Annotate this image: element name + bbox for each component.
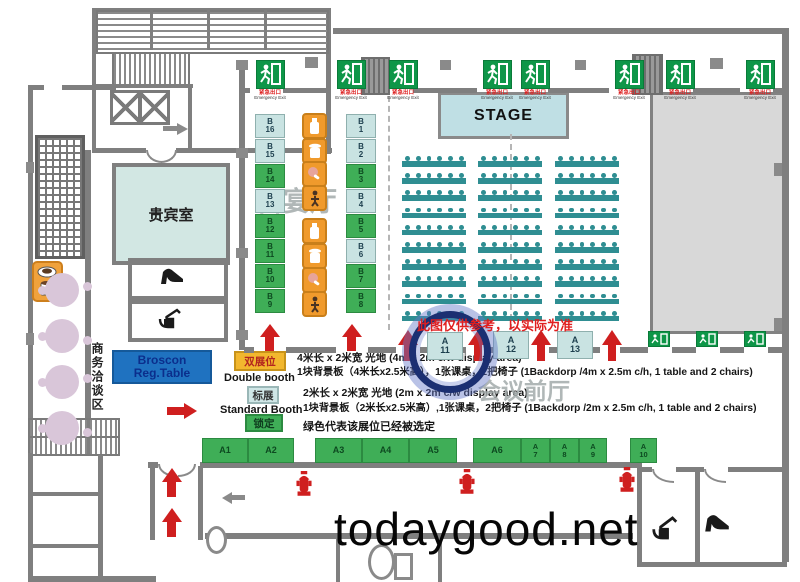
booth-A6[interactable]: A6 [473,438,521,463]
seat-dot [558,208,563,213]
floor-plan: STAGE 贵宾室 Broscon Reg.Table 百宴厅 会议前厅 商务洽… [0,0,800,582]
seat-dot [481,225,486,230]
booth-label-num: 12 [266,226,275,234]
emergency-exit: 紧急出口Emergency Exit [334,60,368,104]
seat-dot [492,259,497,264]
site-watermark: todaygood.net [334,502,639,556]
arrow-head [177,123,188,135]
exit-sign-icon [666,60,695,89]
booth-label: A5 [427,446,439,455]
seat-dot [535,190,540,195]
booth-label-num: 8 [562,451,566,459]
flow-arrow [163,122,189,135]
booth-A9[interactable]: A9 [579,438,607,463]
seat-dot [535,242,540,247]
arrow-head [222,492,232,504]
booth-label-num: 5 [359,226,363,234]
seat-dot [481,208,486,213]
booth-label-num: 15 [266,151,275,159]
emergency-exit: 紧急出口Emergency Exit [518,60,552,104]
exit-sign-icon [746,60,775,89]
seat-dot [580,225,585,230]
seat-dot [416,190,421,195]
exit-caption-en: Emergency Exit [383,95,423,100]
booth-label: A4 [380,446,392,455]
booth-label-num: 8 [359,301,363,309]
exit-sign-icon [648,331,670,347]
booth-B7[interactable]: B7 [346,264,376,288]
seat-dot [612,190,617,195]
seat-dot [459,190,464,195]
emergency-exit: 紧急出口Emergency Exit [386,60,420,104]
seat-dot [503,225,508,230]
seat-dot [535,208,540,213]
chair-dot [38,332,47,341]
seat-dot [524,242,529,247]
booth-label-num: 11 [266,251,274,259]
seat-dot [612,242,617,247]
banquet-table [402,195,466,201]
flow-arrow [222,491,246,504]
seat-dot [590,311,595,316]
banquet-table [555,213,619,219]
booth-A2[interactable]: A2 [248,438,294,463]
seat-dot [492,276,497,281]
seat-dot [612,225,617,230]
entrance-arrow [161,508,182,537]
bottle-icon [302,113,327,139]
seat-dot [524,156,529,161]
seat-dot [612,156,617,161]
booth-B1[interactable]: B1 [346,114,376,138]
arrow-shaft [608,345,617,361]
arrow-head [162,468,182,482]
emergency-exit: 紧急出口Emergency Exit [663,60,697,104]
seat-dot [612,294,617,299]
arrow-shaft [167,407,184,414]
seat-dot [535,156,540,161]
seat-dot [558,173,563,178]
seat-dot [524,173,529,178]
seat-dot [448,259,453,264]
booth-label-num: 9 [268,301,272,309]
seat-dot [580,242,585,247]
seat-dot [492,294,497,299]
exit-sign-icon [483,60,512,89]
seat-dot [492,173,497,178]
banquet-table [555,299,619,305]
seat-dot [558,225,563,230]
booth-label-num: 7 [533,451,537,459]
seat-dot [427,242,432,247]
seat-dot [612,276,617,281]
seat-dot [580,156,585,161]
legend-double-desc2: 1块背景板（4米长x2.5米高），1张课桌，2把椅子 (1Backdorp /4… [297,363,753,378]
seat-dot [416,225,421,230]
chair-dot [83,336,92,345]
person-icon [302,185,327,211]
seat-dot [492,208,497,213]
booth-A4[interactable]: A4 [362,438,409,463]
arrow-shaft [232,495,245,501]
seat-dot [405,190,410,195]
banquet-table [478,178,542,184]
banquet-table [478,281,542,287]
seat-dot [569,208,574,213]
banquet-table [478,161,542,167]
booth-B9[interactable]: B9 [255,289,285,313]
seat-dot [569,156,574,161]
exit-sign-icon [744,331,766,347]
seat-dot [612,259,617,264]
arrow-shaft [167,522,176,537]
booth-A8[interactable]: A8 [550,438,579,463]
seat-dot [590,156,595,161]
arrow-shaft [347,337,356,351]
banquet-table [555,247,619,253]
seat-dot [492,190,497,195]
seat-dot [459,156,464,161]
seat-dot [427,156,432,161]
booth-B4[interactable]: B4 [346,189,376,213]
fire-hydrant-icon [459,469,475,497]
seat-dot [448,156,453,161]
entrance-arrow [602,330,622,361]
exit-caption-en: Emergency Exit [250,95,290,100]
seat-dot [524,225,529,230]
flow-arrow [167,403,197,419]
booth-label-num: 10 [639,451,647,459]
seat-dot [558,276,563,281]
seat-dot [601,242,606,247]
arrow-head [184,403,197,419]
chair-dot [38,286,47,295]
banquet-table [478,299,542,305]
booth-B6[interactable]: B6 [346,239,376,263]
seat-dot [416,276,421,281]
booth-label-num: 14 [266,176,275,184]
booth-B2[interactable]: B2 [346,139,376,163]
booth-label-num: 3 [359,176,363,184]
seat-dot [569,259,574,264]
chair-dot [83,282,92,291]
meat-icon [302,161,327,187]
banquet-table [402,178,466,184]
seat-dot [558,156,563,161]
seat-dot [405,276,410,281]
chair-dot [38,424,47,433]
seat-dot [427,225,432,230]
booth-label: A3 [333,446,345,455]
seat-dot [513,242,518,247]
disclaimer-text: 此图仅供参考，以实际为准 [417,315,573,334]
booth-label-num: 2 [359,151,363,159]
seat-dot [405,208,410,213]
seat-dot [503,156,508,161]
banquet-table [402,264,466,270]
booth-label: A2 [265,446,277,455]
emergency-exit: 紧急出口Emergency Exit [480,60,514,104]
seat-dot [481,173,486,178]
seat-dot [405,311,410,316]
seat-dot [601,225,606,230]
entrance-arrow [161,468,182,497]
seat-dot [405,173,410,178]
seat-dot [535,294,540,299]
seat-dot [481,294,486,299]
booth-B11[interactable]: B11 [255,239,285,263]
banquet-table [555,161,619,167]
booth-label-num: 10 [266,276,275,284]
round-table [45,273,79,307]
booth-label-num: 1 [359,126,363,134]
seat-dot [601,311,606,316]
banquet-table [478,230,542,236]
banquet-table [555,230,619,236]
seat-dot [459,294,464,299]
bottle-icon [302,218,327,244]
seat-dot [601,173,606,178]
exit-caption-en: Emergency Exit [331,95,371,100]
seat-dot [569,294,574,299]
seat-dot [459,208,464,213]
seat-dot [416,208,421,213]
legend-standard-desc2: 1块背景板（2米长x2.5米高）,1张课桌，2把椅子 (1Backdorp /2… [303,399,756,414]
seat-dot [492,225,497,230]
booth-label-num: 7 [359,276,363,284]
seat-dot [503,242,508,247]
round-table [45,319,79,353]
grid-structure [35,135,85,259]
booth-A7[interactable]: A7 [521,438,550,463]
arrow-shaft [167,482,176,497]
exit-caption-en: Emergency Exit [477,95,517,100]
booth-label-num: 16 [266,126,275,134]
exit-sign-icon [615,60,644,89]
booth-B8[interactable]: B8 [346,289,376,313]
seat-dot [590,242,595,247]
booth-label: A6 [491,446,503,455]
seat-dot [405,156,410,161]
booth-label-num: 9 [591,451,595,459]
exit-caption-en: Emergency Exit [660,95,700,100]
banquet-table [555,264,619,270]
emergency-exit: 紧急出口Emergency Exit [612,60,646,104]
seat-dot [492,242,497,247]
booth-A5[interactable]: A5 [409,438,457,463]
seat-dot [437,156,442,161]
seat-dot [459,173,464,178]
seat-dot [569,225,574,230]
seat-dot [448,173,453,178]
entrance-arrow [341,324,362,351]
seat-dot [569,276,574,281]
banquet-table [402,161,466,167]
booth-label-num: 12 [506,345,516,354]
seat-dot [405,242,410,247]
chair-dot [83,428,92,437]
seat-dot [459,225,464,230]
seat-dot [481,190,486,195]
arrow-head [260,324,280,337]
seat-dot [580,311,585,316]
seat-dot [569,173,574,178]
seat-dot [481,276,486,281]
exit-caption-en: Emergency Exit [515,95,555,100]
seat-dot [524,259,529,264]
arrow-shaft [265,337,274,351]
seat-dot [612,208,617,213]
arrow-head [342,324,362,337]
meat-icon [302,267,327,293]
banquet-table [478,264,542,270]
exit-sign-icon [696,331,718,347]
booth-label-num: 6 [359,251,363,259]
seat-dot [416,294,421,299]
fire-hydrant-icon [296,471,312,499]
booth-B16[interactable]: B16 [255,114,285,138]
seat-dot [558,294,563,299]
booth-A12[interactable]: A12 [493,331,529,359]
chair-dot [83,374,92,383]
booth-B3[interactable]: B3 [346,164,376,188]
seat-dot [612,311,617,316]
banquet-table [555,195,619,201]
booth-A1[interactable]: A1 [202,438,248,463]
booth-B15[interactable]: B15 [255,139,285,163]
seat-dot [558,242,563,247]
booth-label-num: 13 [570,345,580,354]
seat-dot [535,276,540,281]
seat-dot [513,225,518,230]
seat-dot [535,259,540,264]
seat-dot [405,294,410,299]
seat-dot [459,276,464,281]
entrance-arrow [259,324,280,351]
seat-dot [612,173,617,178]
booth-label: A1 [219,446,231,455]
booth-B13[interactable]: B13 [255,189,285,213]
booth-A10[interactable]: A10 [630,438,657,463]
seat-dot [448,242,453,247]
exit-caption-en: Emergency Exit [740,95,780,100]
seat-dot [535,225,540,230]
seat-dot [405,259,410,264]
booth-B10[interactable]: B10 [255,264,285,288]
exit-sign-icon [256,60,285,89]
seat-dot [601,259,606,264]
banquet-table [555,178,619,184]
generated-layer: 紧急出口Emergency Exit紧急出口Emergency Exit紧急出口… [0,0,800,582]
seat-dot [459,259,464,264]
seat-dot [569,190,574,195]
person-icon [302,291,327,317]
banquet-table [402,299,466,305]
seat-dot [416,259,421,264]
seat-dot [481,156,486,161]
cup-icon [302,243,327,269]
arrow-head [162,508,182,522]
banquet-table [402,213,466,219]
banquet-table [478,247,542,253]
arrow-shaft [163,126,177,132]
seat-dot [448,225,453,230]
booth-label-num: 4 [359,201,363,209]
arrow-shaft [537,345,546,361]
seat-dot [437,242,442,247]
emergency-exit: 紧急出口Emergency Exit [253,60,287,104]
chair-dot [38,378,47,387]
banquet-table [478,213,542,219]
booth-B12[interactable]: B12 [255,214,285,238]
seat-dot [601,156,606,161]
banquet-table [555,281,619,287]
banquet-table [478,195,542,201]
booth-B14[interactable]: B14 [255,164,285,188]
seat-dot [535,173,540,178]
banquet-table [402,281,466,287]
fire-hydrant-icon [619,467,635,495]
seat-dot [492,156,497,161]
seat-dot [459,242,464,247]
exit-sign-icon [521,60,550,89]
seat-dot [569,242,574,247]
banquet-table [402,230,466,236]
emergency-exit: 紧急出口Emergency Exit [743,60,777,104]
seat-dot [590,225,595,230]
seat-dot [513,156,518,161]
seat-dot [416,156,421,161]
booth-A13[interactable]: A13 [557,331,593,359]
round-table [45,365,79,399]
exit-caption-en: Emergency Exit [609,95,649,100]
seat-dot [558,259,563,264]
banquet-table [402,247,466,253]
booth-B5[interactable]: B5 [346,214,376,238]
booth-label-num: 13 [266,201,275,209]
seat-dot [481,242,486,247]
seat-dot [416,242,421,247]
booth-A3[interactable]: A3 [315,438,362,463]
exit-sign-icon [389,60,418,89]
seat-dot [405,225,410,230]
seat-dot [437,225,442,230]
arrow-head [602,330,622,345]
exit-sign-icon [337,60,366,89]
seat-dot [416,173,421,178]
seat-dot [558,190,563,195]
seat-dot [481,259,486,264]
round-table [45,411,79,445]
entrance-arrow [531,330,551,361]
